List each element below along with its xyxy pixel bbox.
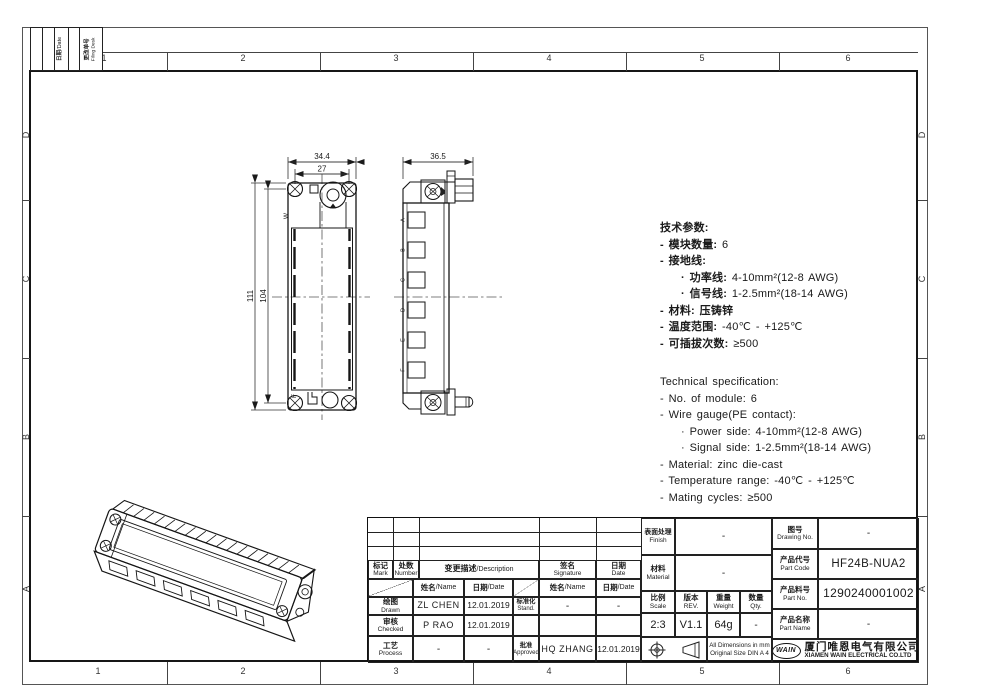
side-body-outline	[403, 171, 473, 415]
grid-tick	[626, 52, 627, 71]
finish-label: 表面处理Finish	[641, 518, 675, 555]
dim-overall-height: 111	[246, 289, 255, 302]
grid-tick	[320, 52, 321, 71]
side-view-drawing: 36.5	[392, 146, 510, 446]
module-label-e: E	[401, 338, 407, 342]
corner-date-cn: 日期	[58, 50, 64, 61]
empty-cell	[539, 615, 596, 636]
corner-cell-date: 日期/Date	[55, 28, 69, 70]
grid-tick	[473, 662, 474, 685]
finish-value: -	[675, 518, 772, 555]
row-label-drawn: 绘图Drawn	[368, 597, 413, 615]
grid-line	[419, 518, 420, 560]
subheader-name-2: 姓名/Name	[539, 579, 596, 597]
wain-logo: WAIN	[772, 643, 801, 659]
tech-en-line: Technical specification:	[660, 374, 871, 391]
grid-line	[368, 546, 641, 547]
mark-top-w: W	[283, 212, 290, 219]
title-block: 标记Mark 处数Number 变更描述/Description 签名Signa…	[367, 517, 918, 662]
tech-cn-line: - 模块数量: 6	[660, 237, 848, 254]
material-label: 材料Material	[641, 555, 675, 591]
corner-cell-empty	[31, 28, 43, 70]
drawing-no-label: 图号Drawing No.	[772, 518, 818, 549]
weight-value: 64g	[707, 613, 740, 637]
dim-vert-pitch: 104	[259, 289, 268, 303]
row-label-checked: 审核Checked	[368, 615, 413, 636]
top-zone-strip-line	[103, 52, 918, 53]
zone-number-top: 5	[692, 53, 712, 63]
grid-line	[596, 518, 597, 560]
drawing-sheet: 1 2 3 4 5 6 1 2 3 4 5 6 D C B A D C B A …	[0, 0, 990, 700]
drawn-name: ZL CHEN	[413, 597, 464, 615]
grid-tick	[918, 516, 928, 517]
rev-header-date: 日期Date	[596, 560, 641, 579]
grid-line	[368, 532, 641, 533]
corner-date-en: /Date	[58, 37, 64, 50]
part-code-label: 产品代号Part Code	[772, 549, 818, 579]
checked-date: 12.01.2019	[464, 615, 513, 636]
company-cell: WAIN 厦门唯恩电气有限公司 XIAMEN WAIN ELECTRICAL C…	[772, 639, 919, 663]
zone-number-top: 4	[539, 53, 559, 63]
row-label-stand: 标准化Stand.	[513, 597, 539, 615]
dim-depth: 36.5	[430, 152, 446, 161]
process-date: -	[464, 636, 513, 663]
tech-params-cn: 技术参数: - 模块数量: 6 - 接地线: · 功率线: 4-10mm²(12…	[660, 220, 848, 352]
drawn-date: 12.01.2019	[464, 597, 513, 615]
checked-name: P RAO	[413, 615, 464, 636]
zone-letter-left: D	[18, 128, 34, 142]
scale-label: 比例Scale	[641, 591, 675, 613]
rev-header-mark: 标记Mark	[368, 560, 393, 579]
zone-number-top: 3	[386, 53, 406, 63]
rev-label: 版本REV.	[675, 591, 707, 613]
zone-number-bottom: 6	[838, 666, 858, 676]
diagonal-cell	[368, 579, 413, 597]
grid-tick	[167, 52, 168, 71]
rev-header-signature: 签名Signature	[539, 560, 596, 579]
module-label-a: A	[401, 218, 407, 222]
zone-number-top: 6	[838, 53, 858, 63]
module-label-d: D	[401, 308, 407, 312]
rev-header-description: 变更描述/Description	[419, 560, 539, 579]
tech-en-line: - Wire gauge(PE contact):	[660, 407, 871, 424]
grid-tick	[320, 662, 321, 685]
grid-line	[539, 518, 540, 560]
zone-letter-right: B	[914, 430, 930, 444]
grid-tick	[22, 516, 30, 517]
part-name-label: 产品名称Part Name	[772, 609, 818, 639]
scale-value: 2:3	[641, 613, 675, 637]
tech-cn-line: · 功率线: 4-10mm²(12-8 AWG)	[660, 270, 848, 287]
zone-number-bottom: 3	[386, 666, 406, 676]
rev-header-number: 处数Number	[393, 560, 419, 579]
tech-cn-line: - 接地线:	[660, 253, 848, 270]
zone-letter-left: C	[18, 272, 34, 286]
company-name-en: XIAMEN WAIN ELECTRICAL CO.LTD	[805, 653, 912, 660]
zone-number-bottom: 4	[539, 666, 559, 676]
material-value: -	[675, 555, 772, 591]
projection-symbols-cell	[641, 637, 707, 663]
row-label-approved: 批准Approved	[513, 636, 539, 663]
part-no-value: 1290240001002	[818, 579, 919, 609]
empty-cell	[513, 615, 539, 636]
tech-en-line: · Signal side: 1-2.5mm²(18-14 AWG)	[660, 440, 871, 457]
row-label-process: 工艺Process	[368, 636, 413, 663]
rev-value: V1.1	[675, 613, 707, 637]
tech-en-line: · Power side: 4-10mm²(12-8 AWG)	[660, 424, 871, 441]
tech-cn-line: - 温度范围: -40℃ - +125℃	[660, 319, 848, 336]
corner-revision-table: 日期/Date 更改单号 Filing Desk	[30, 27, 103, 71]
qty-value: -	[740, 613, 772, 637]
front-view-drawing: 34.4 27 111 104 W	[238, 146, 374, 446]
zone-number-top: 2	[233, 53, 253, 63]
zone-letter-right: C	[914, 272, 930, 286]
subheader-date: 日期/Date	[464, 579, 513, 597]
stand-date: -	[596, 597, 641, 615]
zone-number-bottom: 1	[88, 666, 108, 676]
grid-line	[393, 518, 394, 560]
process-name: -	[413, 636, 464, 663]
stand-name: -	[539, 597, 596, 615]
approved-date: 12.01.2019	[596, 636, 641, 663]
weight-label: 重量Weight	[707, 591, 740, 613]
dim-hole-pitch: 27	[318, 165, 327, 174]
approved-name: HQ ZHANG	[539, 636, 596, 663]
zone-number-bottom: 2	[233, 666, 253, 676]
qty-label: 数量Qty.	[740, 591, 772, 613]
tech-en-line: - Mating cycles: ≥500	[660, 490, 871, 507]
tech-cn-line: 技术参数:	[660, 220, 848, 237]
subheader-date-2: 日期/Date	[596, 579, 641, 597]
grid-tick	[918, 358, 928, 359]
grid-tick	[22, 200, 30, 201]
module-label-c: C	[401, 278, 407, 282]
dimension-lines	[251, 157, 356, 410]
projection-symbols	[643, 639, 705, 661]
grid-tick	[473, 52, 474, 71]
tech-en-line: - Material: zinc die-cast	[660, 457, 871, 474]
grid-tick	[779, 662, 780, 685]
tech-cn-line: · 信号线: 1-2.5mm²(18-14 AWG)	[660, 286, 848, 303]
grid-tick	[22, 358, 30, 359]
zone-letter-right: D	[914, 128, 930, 142]
tech-spec-en: Technical specification: - No. of module…	[660, 374, 871, 506]
subheader-name: 姓名/Name	[413, 579, 464, 597]
corner-cell-empty	[43, 28, 55, 70]
part-no-label: 产品料号Part No.	[772, 579, 818, 609]
grid-tick	[779, 52, 780, 71]
corner-cell-filing: 更改单号 Filing Desk	[80, 28, 102, 70]
module-label-b: B	[401, 248, 407, 252]
drawing-no-value: -	[818, 518, 919, 549]
tech-cn-line: - 材料: 压铸锌	[660, 303, 848, 320]
part-name-value: -	[818, 609, 919, 639]
zone-letter-left: A	[18, 582, 34, 596]
empty-cell	[596, 615, 641, 636]
mark-bottom-f: F	[291, 394, 298, 398]
zone-number-bottom: 5	[692, 666, 712, 676]
corner-filing-en: Filing Desk	[91, 37, 96, 61]
part-code-value: HF24B-NUA2	[818, 549, 919, 579]
grid-tick	[918, 200, 928, 201]
zone-letter-left: B	[18, 430, 34, 444]
isometric-view-drawing	[88, 462, 340, 658]
first-angle-projection-icon	[683, 642, 699, 658]
tech-en-line: - Temperature range: -40℃ - +125℃	[660, 473, 871, 490]
grid-tick	[167, 662, 168, 685]
tech-cn-line: - 可插拔次数: ≥500	[660, 336, 848, 353]
dim-overall-width: 34.4	[314, 152, 330, 161]
corner-cell-empty	[69, 28, 80, 70]
grid-tick	[626, 662, 627, 685]
diagonal-cell	[513, 579, 539, 597]
tech-en-line: - No. of module: 6	[660, 391, 871, 408]
dimensions-note: All Dimensions in mmOriginal Size DIN A …	[707, 637, 772, 663]
